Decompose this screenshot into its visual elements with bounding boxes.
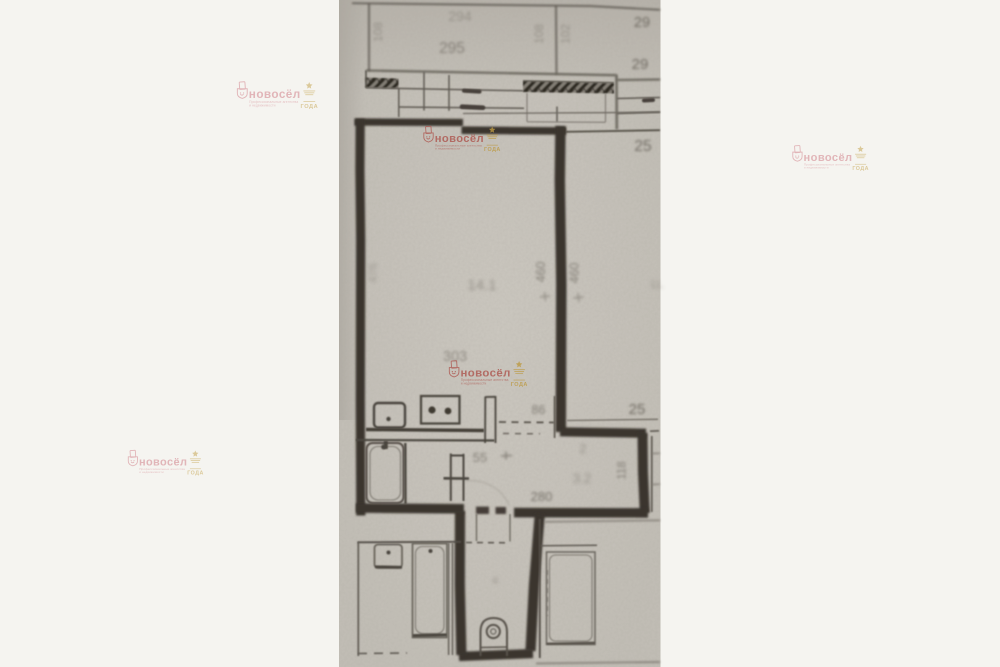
svg-text:4: 4 — [492, 575, 498, 587]
svg-text:3.2: 3.2 — [573, 471, 592, 486]
svg-text:295: 295 — [439, 40, 465, 57]
svg-text:460: 460 — [568, 263, 582, 284]
svg-text:25: 25 — [629, 401, 646, 418]
svg-text:29: 29 — [634, 15, 650, 31]
svg-text:108: 108 — [532, 24, 546, 44]
svg-text:294: 294 — [448, 8, 472, 24]
svg-text:460: 460 — [534, 262, 548, 283]
svg-text:108: 108 — [371, 22, 385, 42]
svg-text:2: 2 — [580, 442, 587, 456]
svg-text:14.1: 14.1 — [467, 277, 496, 294]
svg-text:476: 476 — [366, 263, 380, 283]
svg-text:11.: 11. — [650, 279, 664, 291]
svg-text:303: 303 — [443, 349, 467, 365]
svg-text:118: 118 — [617, 461, 629, 479]
svg-text:102: 102 — [559, 24, 573, 44]
svg-text:29: 29 — [632, 56, 649, 73]
svg-text:25: 25 — [634, 138, 651, 155]
svg-text:86: 86 — [532, 403, 546, 417]
svg-text:280: 280 — [531, 489, 553, 504]
svg-text:55: 55 — [473, 450, 487, 465]
